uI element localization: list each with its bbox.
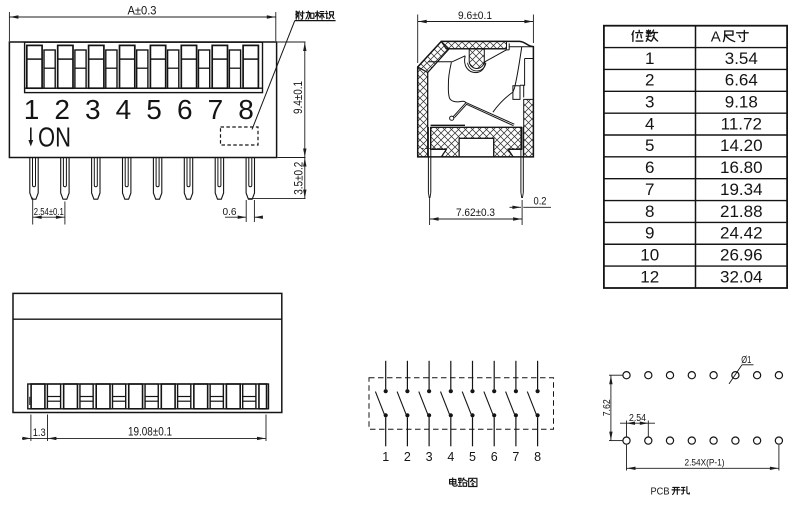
svg-text:7: 7 — [208, 94, 224, 125]
svg-text:14.20: 14.20 — [720, 136, 763, 155]
svg-text:24.42: 24.42 — [720, 224, 763, 243]
svg-text:8: 8 — [534, 450, 541, 464]
svg-text:PCB: PCB — [651, 485, 670, 497]
svg-text:6: 6 — [645, 158, 654, 177]
svg-text:19.08±0.1: 19.08±0.1 — [128, 426, 172, 438]
svg-text:ON: ON — [38, 122, 71, 153]
svg-text:1: 1 — [24, 94, 40, 125]
svg-text:3.5±0.2: 3.5±0.2 — [293, 162, 305, 195]
svg-text:0.6: 0.6 — [223, 206, 237, 218]
svg-text:0.2: 0.2 — [534, 196, 547, 208]
svg-text:3: 3 — [645, 93, 654, 112]
svg-text:8: 8 — [645, 202, 654, 221]
svg-text:Ø1: Ø1 — [741, 355, 751, 366]
svg-text:5: 5 — [645, 136, 654, 155]
svg-text:6.64: 6.64 — [725, 71, 758, 90]
svg-text:21.88: 21.88 — [720, 202, 763, 221]
svg-text:4: 4 — [116, 94, 132, 125]
svg-text:3.54: 3.54 — [725, 49, 758, 68]
svg-text:1: 1 — [645, 49, 654, 68]
svg-text:3: 3 — [85, 94, 101, 125]
svg-text:2: 2 — [404, 450, 411, 464]
svg-text:9.4±0.1: 9.4±0.1 — [293, 81, 305, 114]
svg-text:8: 8 — [238, 94, 254, 125]
svg-text:16.80: 16.80 — [720, 158, 763, 177]
svg-text:11.72: 11.72 — [721, 114, 762, 133]
svg-text:1.3: 1.3 — [33, 427, 46, 439]
svg-text:2.54: 2.54 — [629, 413, 646, 424]
svg-text:2.54X(P-1): 2.54X(P-1) — [685, 457, 725, 468]
svg-text:10: 10 — [640, 245, 659, 264]
svg-text:A: A — [711, 29, 721, 46]
svg-text:1: 1 — [382, 450, 389, 464]
svg-text:9.18: 9.18 — [725, 93, 758, 112]
svg-text:19.34: 19.34 — [720, 180, 763, 199]
svg-text:7: 7 — [512, 450, 519, 464]
svg-text:6: 6 — [177, 94, 193, 125]
svg-text:A±0.3: A±0.3 — [128, 6, 157, 18]
svg-text:2: 2 — [54, 94, 70, 125]
svg-text:4: 4 — [645, 114, 654, 133]
svg-text:5: 5 — [469, 450, 476, 464]
svg-text:26.96: 26.96 — [720, 245, 763, 264]
svg-text:7.62±0.3: 7.62±0.3 — [456, 207, 495, 219]
svg-text:4: 4 — [447, 450, 454, 464]
svg-text:5: 5 — [146, 94, 162, 125]
svg-text:12: 12 — [640, 267, 659, 286]
svg-text:2.54±0.1: 2.54±0.1 — [34, 207, 64, 218]
svg-text:9: 9 — [645, 224, 654, 243]
svg-text:32.04: 32.04 — [720, 267, 763, 286]
svg-text:9.6±0.1: 9.6±0.1 — [458, 10, 492, 22]
svg-text:7.62: 7.62 — [602, 399, 613, 416]
svg-text:6: 6 — [491, 450, 498, 464]
svg-text:3: 3 — [426, 450, 433, 464]
svg-text:2: 2 — [645, 71, 654, 90]
svg-text:7: 7 — [645, 180, 654, 199]
